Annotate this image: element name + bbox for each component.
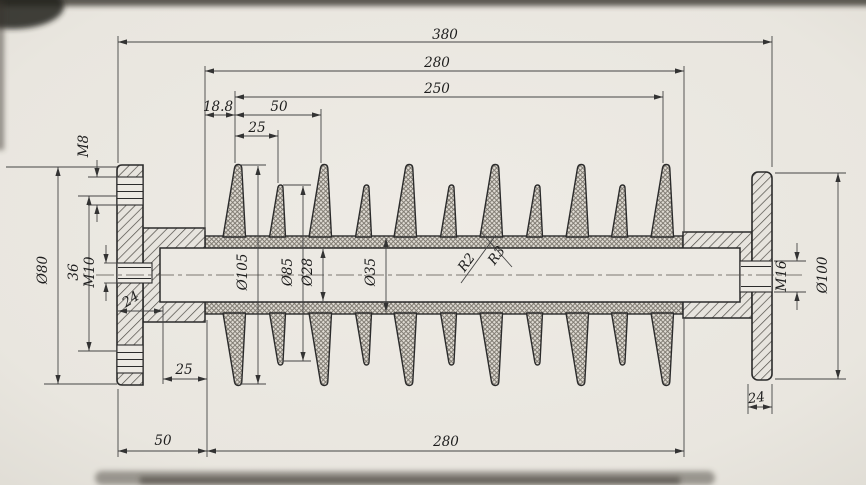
left-flange-bolt-hole-bottom	[117, 345, 143, 373]
dim-shed-spacing-label: 25	[247, 120, 265, 136]
dim-left-flange-hole-thread-label: M8	[76, 134, 92, 158]
left-flange-bolt-hole-top	[117, 177, 143, 205]
dim-bottom-shed-offset-label: 25	[174, 362, 192, 378]
dim-insulation-length-top-label: 280	[423, 55, 450, 71]
dim-small-shed-diameter-label: Ø85	[280, 258, 296, 287]
dim-overall-length-label: 380	[432, 27, 458, 43]
dim-sheath-diameter-label: Ø35	[363, 258, 379, 287]
dim-large-shed-diameter-label: Ø105	[235, 254, 251, 292]
dim-right-flange-diameter-label: Ø100	[815, 256, 831, 294]
insulator-section-drawing: 380 280 250 18.8 50 25 Ø105	[0, 0, 866, 485]
dim-large-shed-pitch-label: 50	[270, 99, 288, 115]
right-stud-thread-hole	[740, 261, 772, 292]
scanned-technical-drawing: 380 280 250 18.8 50 25 Ø105	[0, 0, 866, 485]
dim-first-shed-offset-label: 18.8	[203, 99, 233, 115]
dim-first-shed-offset: 18.8	[203, 99, 235, 118]
dim-shed-span-label: 250	[423, 81, 450, 97]
dim-right-stud-thread-label: M16	[774, 260, 790, 292]
dim-end-fitting-length-label: 50	[154, 433, 172, 449]
dim-left-stud-thread-label: M10	[82, 256, 98, 288]
dim-left-hole-spacing-label: 36	[66, 263, 82, 281]
left-stud-thread-hole	[117, 263, 152, 283]
dim-core-rod-diameter-label: Ø28	[300, 257, 316, 287]
dim-right-flange-thickness-label: 24	[746, 389, 766, 407]
dim-left-flange-diameter-label: Ø80	[35, 255, 51, 285]
dim-insulation-length-bottom-label: 280	[432, 434, 459, 450]
